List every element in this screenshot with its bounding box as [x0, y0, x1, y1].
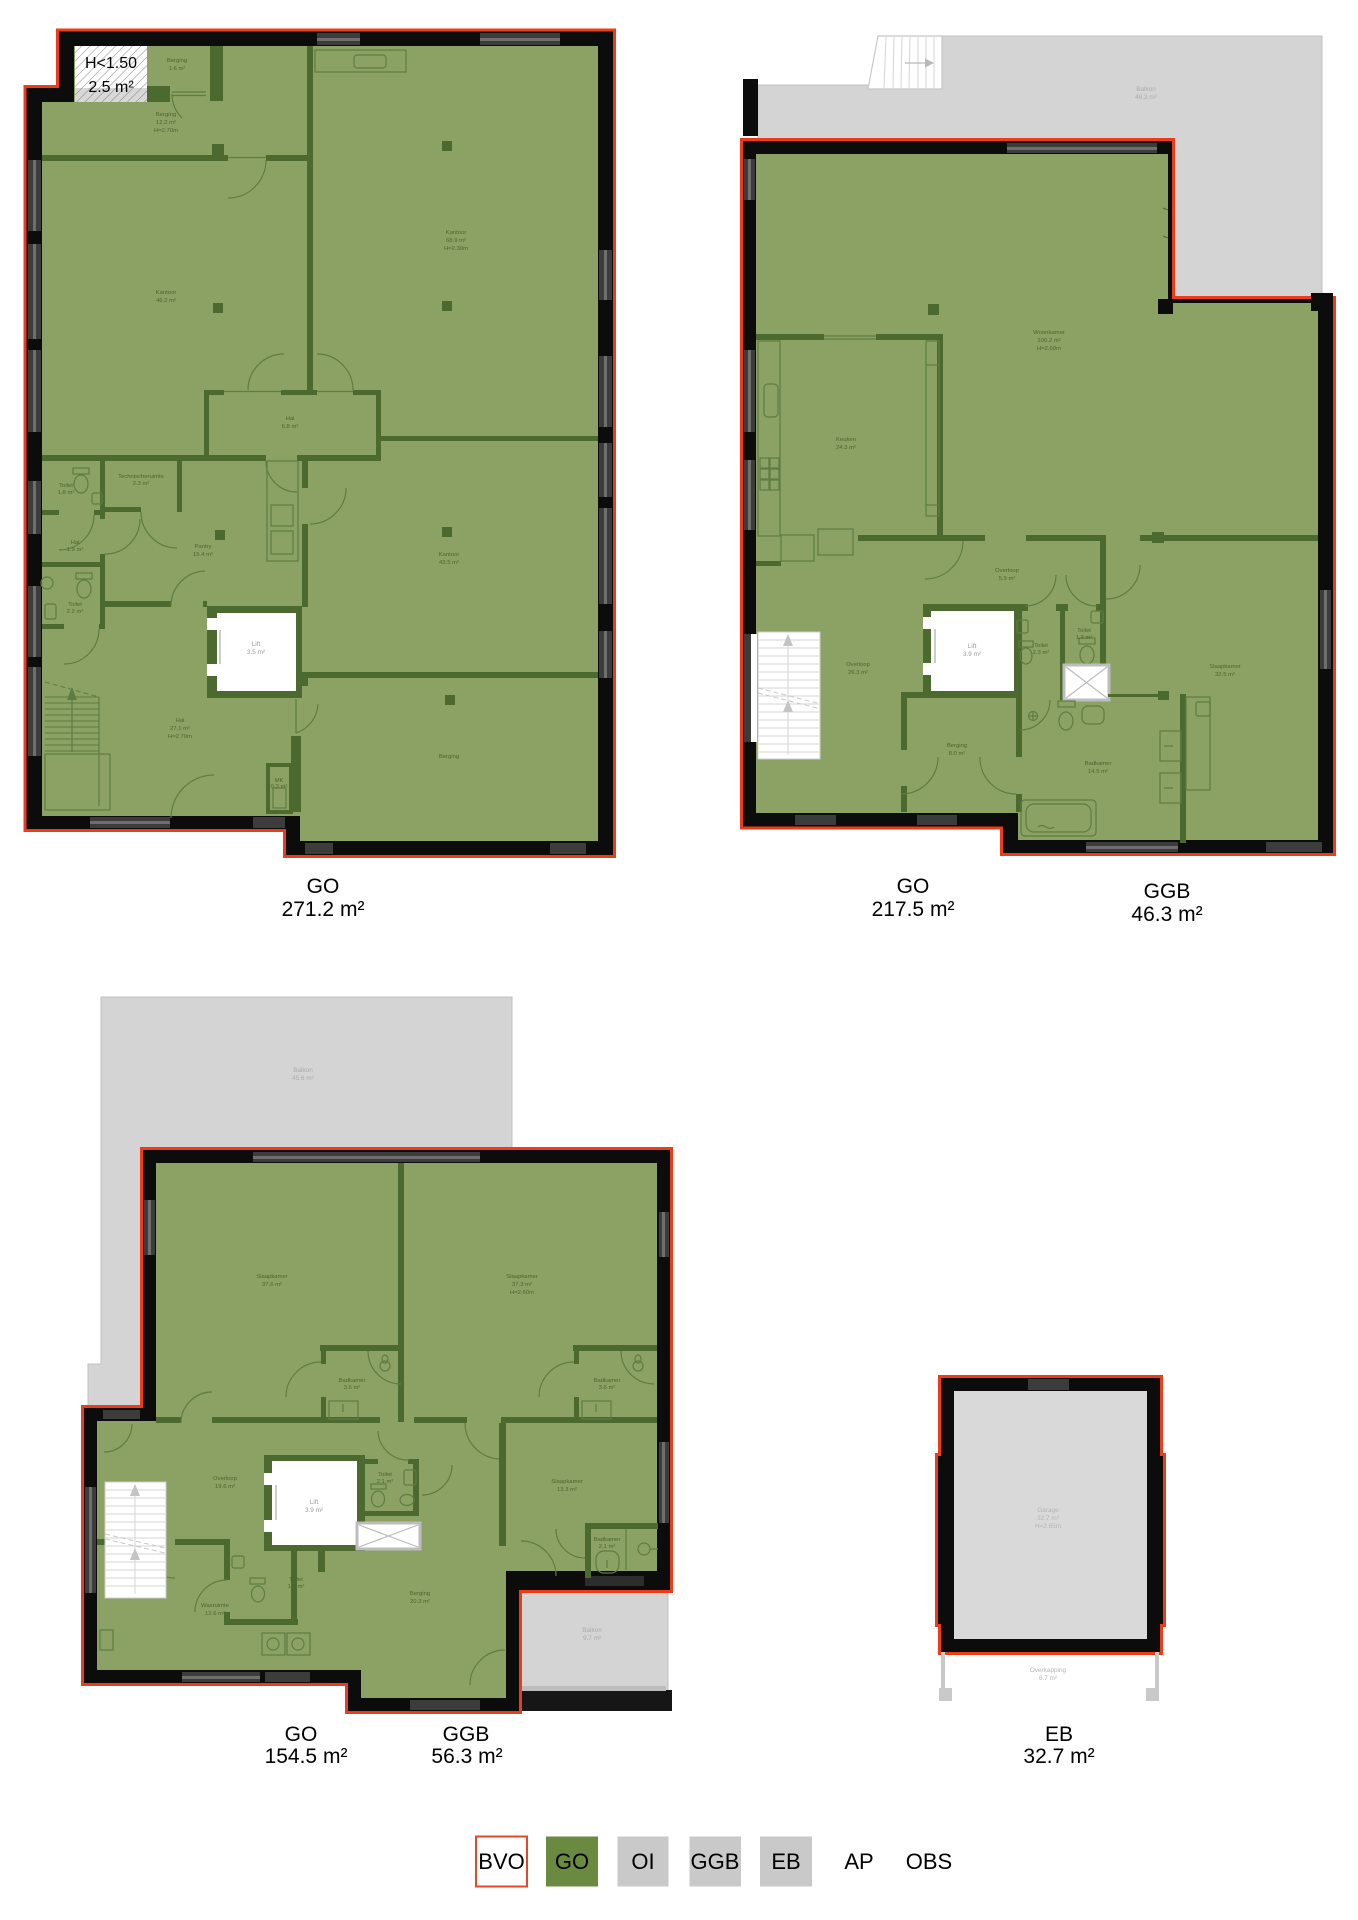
- svg-text:Overloop: Overloop: [846, 662, 871, 668]
- svg-text:EB: EB: [771, 1849, 800, 1874]
- svg-text:37.6 m²: 37.6 m²: [262, 1282, 282, 1288]
- svg-text:19.6 m²: 19.6 m²: [215, 1484, 235, 1490]
- svg-text:Pantry: Pantry: [194, 544, 211, 550]
- svg-text:Slaapkamer: Slaapkamer: [1209, 664, 1240, 670]
- svg-text:3.9 m²: 3.9 m²: [963, 651, 981, 658]
- svg-text:Slaapkamer: Slaapkamer: [551, 1479, 582, 1485]
- svg-text:32.5 m²: 32.5 m²: [1215, 672, 1235, 678]
- svg-text:0.3 m²: 0.3 m²: [271, 784, 288, 790]
- svg-text:Keuken: Keuken: [836, 437, 856, 443]
- svg-text:Berging: Berging: [167, 58, 187, 64]
- svg-text:9.7 m²: 9.7 m²: [583, 1635, 601, 1642]
- svg-text:Toilet: Toilet: [1077, 628, 1091, 634]
- svg-text:Balkon: Balkon: [1136, 86, 1156, 93]
- svg-text:Overkapping: Overkapping: [1030, 1667, 1067, 1674]
- svg-text:3.9 m²: 3.9 m²: [305, 1507, 323, 1514]
- svg-text:2.3 m²: 2.3 m²: [133, 481, 150, 487]
- svg-text:3.6 m²: 3.6 m²: [599, 1385, 616, 1391]
- svg-text:H=2.65m: H=2.65m: [1035, 1523, 1061, 1530]
- svg-text:1.9 m²: 1.9 m²: [67, 547, 84, 553]
- svg-text:32.7 m²: 32.7 m²: [1037, 1515, 1059, 1522]
- svg-text:H=2.60m: H=2.60m: [1037, 346, 1061, 352]
- svg-text:46.3 m²: 46.3 m²: [1131, 903, 1202, 926]
- svg-text:Toilet: Toilet: [68, 602, 82, 608]
- svg-text:GO: GO: [307, 875, 340, 898]
- svg-text:EB: EB: [1045, 1723, 1073, 1746]
- svg-text:32.7 m²: 32.7 m²: [1023, 1745, 1094, 1768]
- svg-text:Toilet: Toilet: [289, 1577, 303, 1583]
- svg-text:Kantoor: Kantoor: [446, 230, 467, 236]
- svg-text:Berging: Berging: [410, 1591, 430, 1597]
- svg-text:217.5 m²: 217.5 m²: [872, 898, 955, 921]
- svg-text:GGB: GGB: [691, 1849, 740, 1874]
- svg-text:Hal: Hal: [176, 718, 185, 724]
- svg-text:BVO: BVO: [478, 1849, 524, 1874]
- svg-text:12.6 m²: 12.6 m²: [205, 1611, 225, 1617]
- svg-text:Balkon: Balkon: [293, 1067, 313, 1074]
- svg-text:Badkamer: Badkamer: [1085, 761, 1112, 767]
- svg-text:13.3 m²: 13.3 m²: [557, 1487, 577, 1493]
- svg-text:Badkamer: Badkamer: [594, 1537, 621, 1543]
- svg-text:Kantoor: Kantoor: [156, 290, 177, 296]
- svg-text:Hal: Hal: [286, 416, 295, 422]
- svg-text:2.2 m²: 2.2 m²: [67, 609, 84, 615]
- svg-text:45.6 m²: 45.6 m²: [292, 1075, 314, 1082]
- svg-text:3.5 m²: 3.5 m²: [247, 649, 265, 656]
- svg-text:3.6 m²: 3.6 m²: [344, 1385, 361, 1391]
- svg-text:GGB: GGB: [1144, 880, 1191, 903]
- svg-text:Lift: Lift: [252, 641, 261, 648]
- svg-text:43.5 m²: 43.5 m²: [439, 560, 459, 566]
- svg-text:Lift: Lift: [310, 1499, 319, 1506]
- svg-text:12.2 m²: 12.2 m²: [156, 120, 176, 126]
- svg-text:2.1 m²: 2.1 m²: [599, 1544, 616, 1550]
- svg-text:100.2 m²: 100.2 m²: [1037, 338, 1060, 344]
- svg-text:6.8 m²: 6.8 m²: [282, 424, 299, 430]
- svg-text:OI: OI: [631, 1849, 654, 1874]
- svg-text:2.3 m²: 2.3 m²: [1033, 650, 1050, 656]
- svg-text:Toilet: Toilet: [378, 1472, 392, 1478]
- svg-text:Technischeruimte: Technischeruimte: [118, 474, 165, 480]
- svg-text:Berging: Berging: [156, 112, 176, 118]
- svg-text:14.5 m²: 14.5 m²: [1088, 769, 1108, 775]
- svg-text:H<1.50: H<1.50: [85, 55, 137, 72]
- svg-text:24.3 m²: 24.3 m²: [836, 445, 856, 451]
- svg-text:H=2.70m: H=2.70m: [154, 128, 178, 134]
- svg-text:H=2.70m: H=2.70m: [168, 734, 192, 740]
- svg-text:Balkon: Balkon: [582, 1627, 602, 1634]
- svg-text:154.5 m²: 154.5 m²: [265, 1745, 348, 1768]
- svg-text:1.3 m²: 1.3 m²: [288, 1584, 305, 1590]
- svg-text:Slaapkamer: Slaapkamer: [506, 1274, 537, 1280]
- svg-text:H=2.30m: H=2.30m: [444, 246, 468, 252]
- svg-text:46.3 m²: 46.3 m²: [1135, 94, 1157, 101]
- svg-text:Kantoor: Kantoor: [439, 552, 460, 558]
- svg-text:5.9 m²: 5.9 m²: [999, 576, 1016, 582]
- svg-text:20.3 m²: 20.3 m²: [410, 1599, 430, 1605]
- svg-text:GO: GO: [897, 875, 930, 898]
- svg-text:56.3 m²: 56.3 m²: [431, 1745, 502, 1768]
- svg-text:OBS: OBS: [906, 1849, 952, 1874]
- svg-text:8.0 m²: 8.0 m²: [949, 751, 966, 757]
- svg-text:15.4 m²: 15.4 m²: [193, 552, 213, 558]
- svg-text:26.3 m²: 26.3 m²: [848, 670, 868, 676]
- svg-text:AP: AP: [844, 1849, 873, 1874]
- svg-text:GGB: GGB: [443, 1723, 490, 1746]
- svg-text:6.7 m²: 6.7 m²: [1039, 1675, 1057, 1682]
- svg-text:GO: GO: [285, 1723, 318, 1746]
- svg-text:271.2 m²: 271.2 m²: [282, 898, 365, 921]
- svg-text:37.3 m²: 37.3 m²: [512, 1282, 532, 1288]
- svg-text:Hal: Hal: [71, 540, 80, 546]
- svg-text:Badkamer: Badkamer: [339, 1378, 366, 1384]
- svg-text:Slaapkamer: Slaapkamer: [256, 1274, 287, 1280]
- svg-text:2.5 m²: 2.5 m²: [88, 79, 134, 96]
- svg-text:Badkamer: Badkamer: [594, 1378, 621, 1384]
- svg-text:1.6 m²: 1.6 m²: [169, 66, 186, 72]
- svg-text:GO: GO: [555, 1849, 589, 1874]
- svg-text:27.1 m²: 27.1 m²: [170, 726, 190, 732]
- svg-text:Toilet: Toilet: [1034, 643, 1048, 649]
- svg-text:Woonkamer: Woonkamer: [1033, 330, 1065, 336]
- svg-text:Garage: Garage: [1037, 1507, 1059, 1514]
- svg-text:46.2 m²: 46.2 m²: [156, 298, 176, 304]
- svg-text:Toilet: Toilet: [59, 483, 73, 489]
- svg-text:2.1 m²: 2.1 m²: [377, 1479, 394, 1485]
- svg-text:Lift: Lift: [968, 643, 977, 650]
- svg-text:1.3 m²: 1.3 m²: [1076, 635, 1093, 641]
- svg-text:1.8 m²: 1.8 m²: [58, 490, 75, 496]
- svg-text:68.9 m²: 68.9 m²: [446, 238, 466, 244]
- svg-text:Wasruimte: Wasruimte: [201, 1603, 230, 1609]
- svg-text:Berging: Berging: [947, 743, 967, 749]
- svg-text:Berging: Berging: [439, 754, 459, 760]
- svg-text:H=2.60m: H=2.60m: [510, 1290, 534, 1296]
- svg-text:Overloop: Overloop: [995, 568, 1020, 574]
- svg-text:Overloop: Overloop: [213, 1476, 238, 1482]
